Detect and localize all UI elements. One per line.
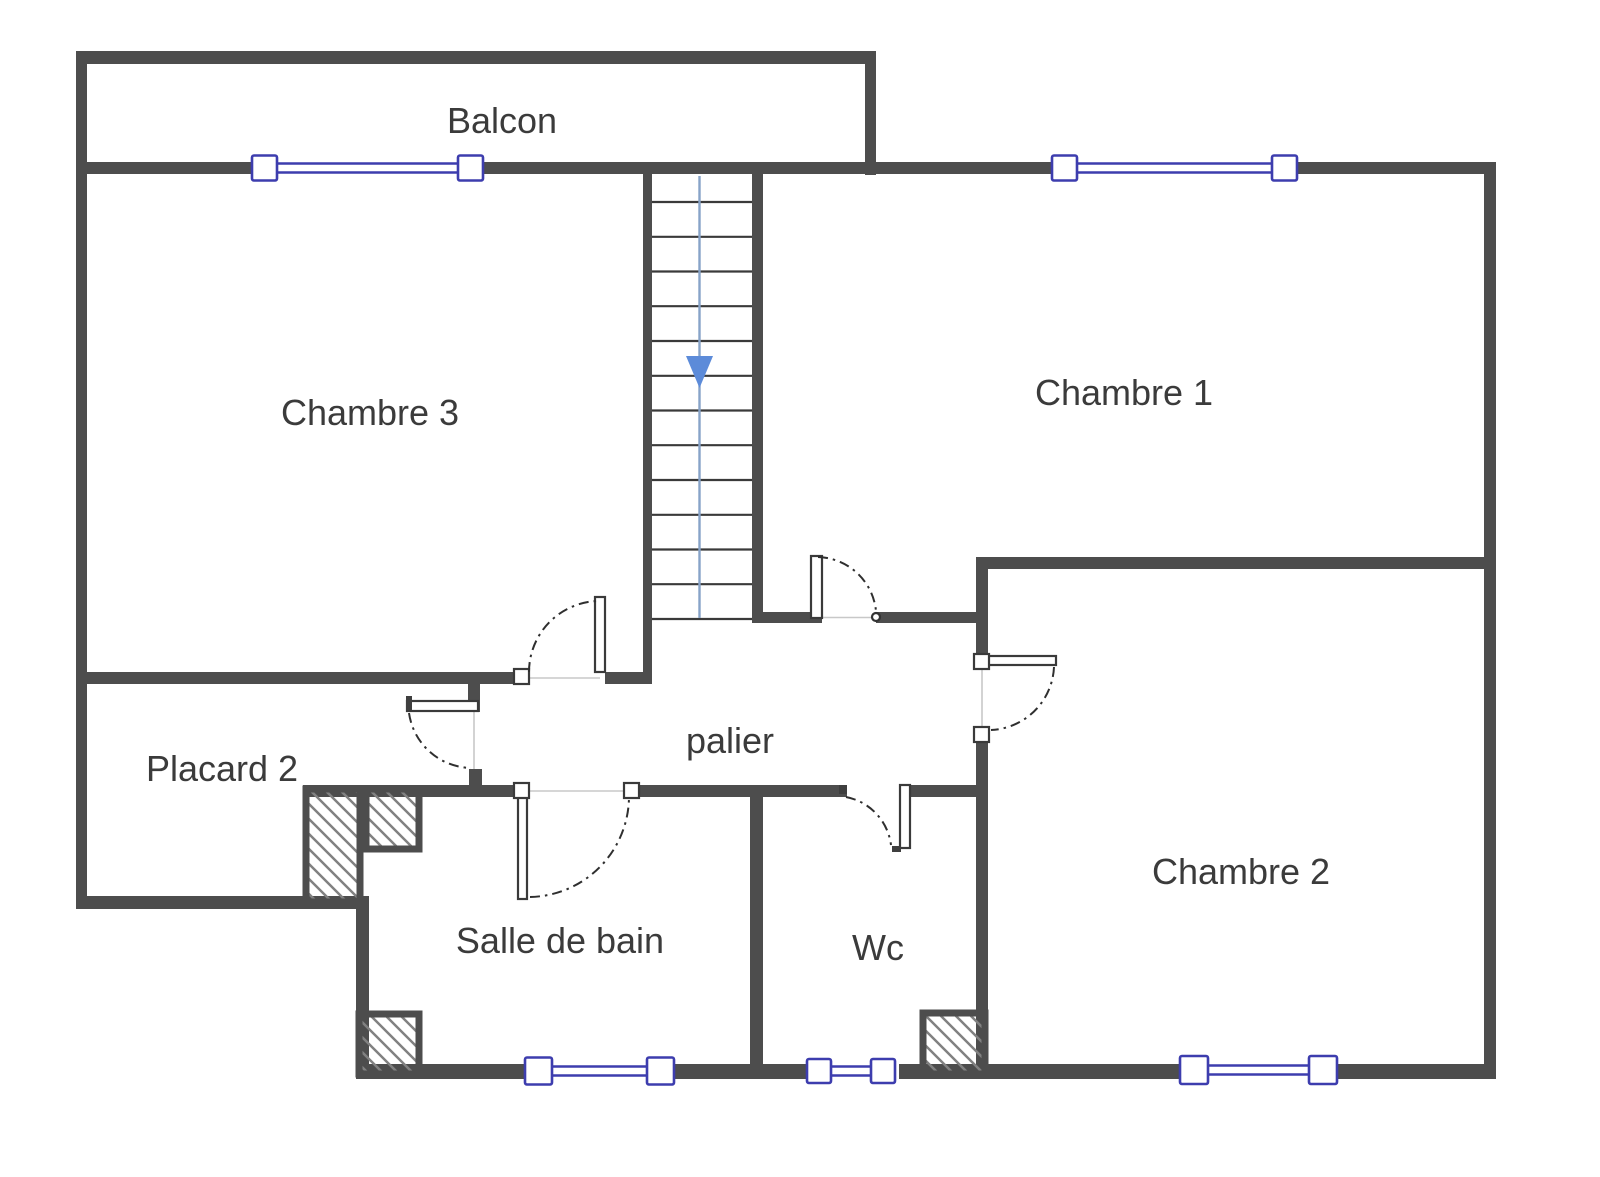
svg-text:Balcon: Balcon [447, 100, 557, 141]
svg-text:Chambre 3: Chambre 3 [281, 392, 459, 433]
svg-text:Chambre 1: Chambre 1 [1035, 372, 1213, 413]
svg-text:Wc: Wc [852, 927, 904, 968]
svg-text:palier: palier [686, 720, 774, 761]
svg-text:Salle de bain: Salle de bain [456, 920, 664, 961]
svg-text:Placard 2: Placard 2 [146, 748, 298, 789]
svg-text:Chambre 2: Chambre 2 [1152, 851, 1330, 892]
